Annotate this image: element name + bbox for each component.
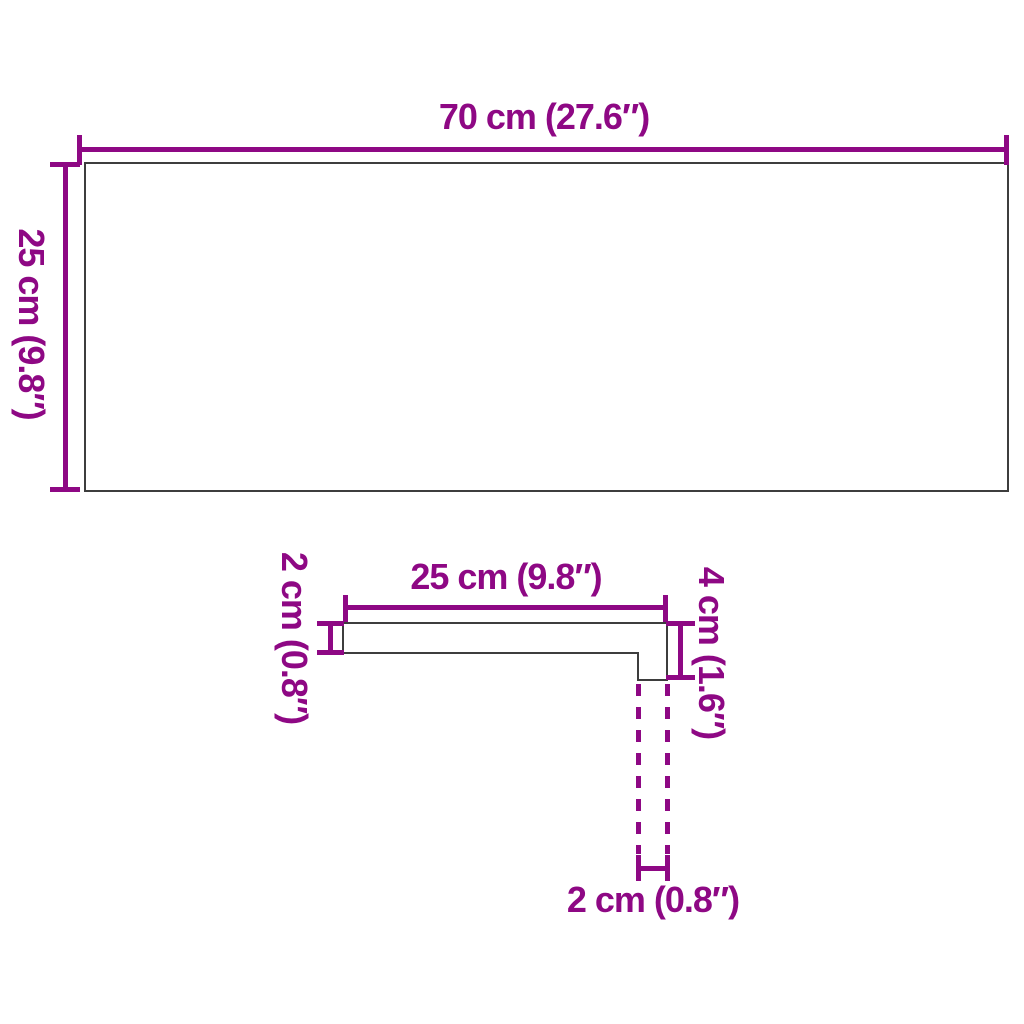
width-dimension-line <box>80 147 1008 152</box>
profile-thickness-label: 2 cm (0.8″) <box>273 552 315 724</box>
profile-thickness-tick-bottom <box>317 650 344 655</box>
profile-length-tick-left <box>343 595 348 622</box>
depth-dimension-tick-top <box>50 162 80 167</box>
profile-length-label: 25 cm (9.8″) <box>345 555 667 599</box>
nose-extension-dashed-line-right <box>665 684 670 854</box>
profile-height-dimension-line <box>678 623 683 680</box>
profile-length-dimension-line <box>345 605 667 610</box>
top-view-depth-label: 25 cm (9.8″) <box>10 228 52 419</box>
profile-nose-width-label: 2 cm (0.8″) <box>553 878 753 922</box>
top-view-width-label: 70 cm (27.6″) <box>80 94 1008 140</box>
profile-thickness-tick-top <box>317 621 344 626</box>
profile-outline-svg <box>0 0 1024 1024</box>
nose-width-dimension-line <box>636 866 670 871</box>
nose-extension-dashed-line-left <box>636 684 641 854</box>
profile-height-label: 4 cm (1.6″) <box>690 567 732 739</box>
depth-dimension-line <box>63 162 68 492</box>
profile-panel-outline <box>343 623 667 680</box>
top-view-panel-outline <box>84 162 1009 492</box>
profile-length-tick-right <box>663 595 668 622</box>
dimension-diagram: 70 cm (27.6″) 25 cm (9.8″) 25 cm (9.8″) … <box>0 0 1024 1024</box>
depth-dimension-tick-bottom <box>50 487 80 492</box>
